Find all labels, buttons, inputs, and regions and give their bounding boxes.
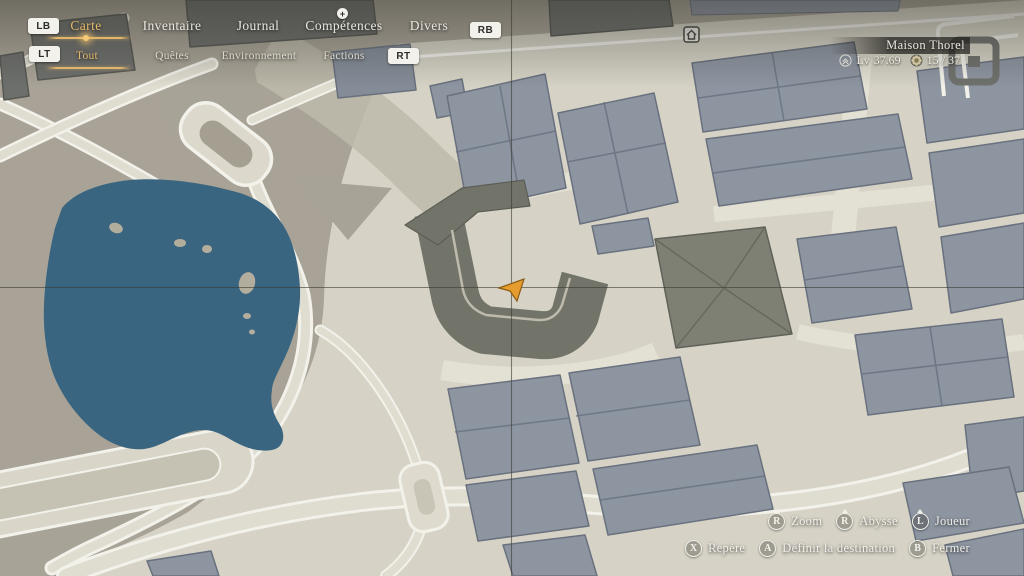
active-filter-underline <box>46 67 131 69</box>
control-definir-destination[interactable]: A Définir la destination <box>759 540 895 557</box>
rt-trigger-button[interactable]: RT <box>388 48 419 64</box>
lt-trigger-button[interactable]: LT <box>29 46 60 62</box>
controls-row-sticks: R Zoom R Abysse L Joueur <box>768 513 970 530</box>
world-map[interactable] <box>0 0 1024 576</box>
lake <box>44 179 300 450</box>
control-joueur[interactable]: L Joueur <box>912 513 970 530</box>
level-prefix: Lv <box>856 53 869 68</box>
control-label: Fermer <box>932 541 970 556</box>
location-name: Maison Thorel <box>886 38 965 53</box>
location-stats: Lv 37.69 15 / 37 <box>839 53 960 68</box>
level-group: Lv 37.69 <box>839 53 900 68</box>
left-stick-press-icon: L <box>912 513 929 530</box>
right-stick-icon: R <box>768 513 785 530</box>
x-button-icon: X <box>685 540 702 557</box>
control-label: Abysse <box>859 514 898 529</box>
control-zoom[interactable]: R Zoom <box>768 513 822 530</box>
tab-competences[interactable]: Compétences <box>305 18 382 34</box>
house-poi-icon[interactable] <box>684 27 699 42</box>
control-repere[interactable]: X Repère <box>685 540 745 557</box>
flower-icon <box>910 54 923 67</box>
flag-count-group: 15 / 37 <box>910 53 960 68</box>
control-label: Définir la destination <box>782 541 895 556</box>
flag-count: 15 / 37 <box>927 53 960 68</box>
control-fermer[interactable]: B Fermer <box>909 540 970 557</box>
filter-environnement[interactable]: Environnement <box>222 50 297 62</box>
tab-journal[interactable]: Journal <box>237 18 280 34</box>
control-abysse[interactable]: R Abysse <box>836 513 898 530</box>
lb-shoulder-button[interactable]: LB <box>28 18 59 34</box>
right-stick-press-icon: R <box>836 513 853 530</box>
tab-carte[interactable]: Carte <box>70 18 101 34</box>
a-button-icon: A <box>759 540 776 557</box>
control-label: Joueur <box>935 514 970 529</box>
controls-row-buttons: X Repère A Définir la destination B Ferm… <box>685 540 970 557</box>
control-label: Zoom <box>791 514 822 529</box>
active-tab-dot <box>83 35 89 41</box>
filter-factions[interactable]: Factions <box>323 50 364 62</box>
level-value: 37.69 <box>874 53 901 68</box>
filter-tout[interactable]: Tout <box>76 50 98 62</box>
rb-shoulder-button[interactable]: RB <box>470 22 501 38</box>
skill-point-badge: + <box>337 8 348 19</box>
location-bar: Maison Thorel <box>830 37 970 54</box>
level-icon <box>839 54 852 67</box>
tab-inventaire[interactable]: Inventaire <box>143 18 202 34</box>
game-map-screen: LB Carte Inventaire Journal Compétences … <box>0 0 1024 576</box>
tab-divers[interactable]: Divers <box>410 18 448 34</box>
filter-quetes[interactable]: Quêtes <box>155 50 189 62</box>
control-label: Repère <box>708 541 745 556</box>
b-button-icon: B <box>909 540 926 557</box>
